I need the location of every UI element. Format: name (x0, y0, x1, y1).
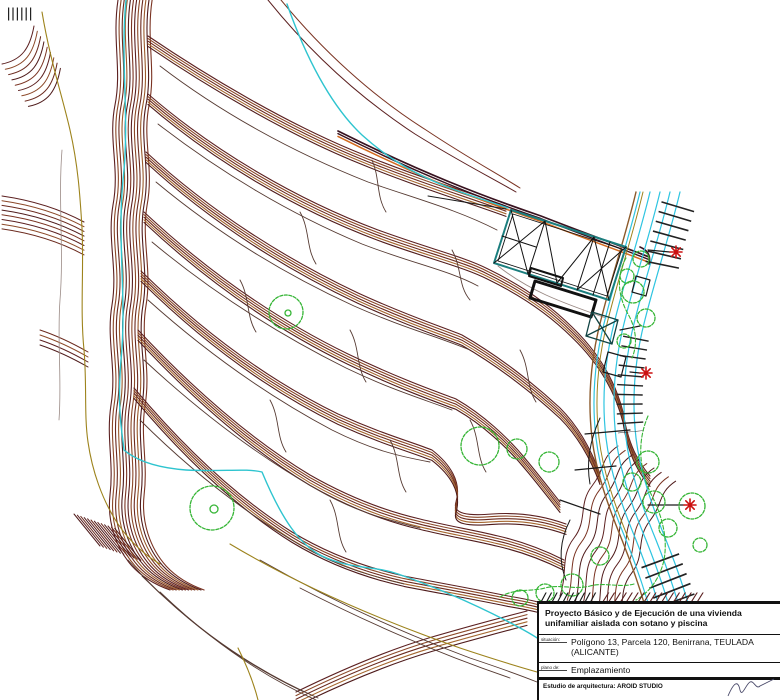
contour-fans (2, 26, 88, 367)
upper-boundary-lines (268, 0, 650, 264)
left-ridge-contours (109, 0, 204, 590)
field-value: Polígono 13, Parcela 120, Benirrana, TEU… (569, 635, 780, 659)
signature-scribble (726, 676, 776, 700)
site-plan-page: Proyecto Básico y de Ejecución de una vi… (0, 0, 780, 700)
field-plano: plano de: Emplazamiento (539, 663, 780, 677)
star-marker (640, 367, 652, 379)
title-block: Proyecto Básico y de Ejecución de una vi… (537, 601, 780, 700)
field-label: plano de: (539, 663, 567, 671)
field-value: Emplazamiento (569, 663, 632, 677)
field-label: situación: (539, 635, 567, 643)
project-title: Proyecto Básico y de Ejecución de una vi… (539, 604, 780, 628)
pool-rectangle (530, 281, 596, 317)
star-marker (684, 499, 696, 511)
site-plan-drawing (0, 0, 780, 700)
field-situacion: situación: Polígono 13, Parcela 120, Ben… (539, 635, 780, 662)
site-detail-lines (428, 196, 684, 580)
star-marker (670, 246, 682, 258)
